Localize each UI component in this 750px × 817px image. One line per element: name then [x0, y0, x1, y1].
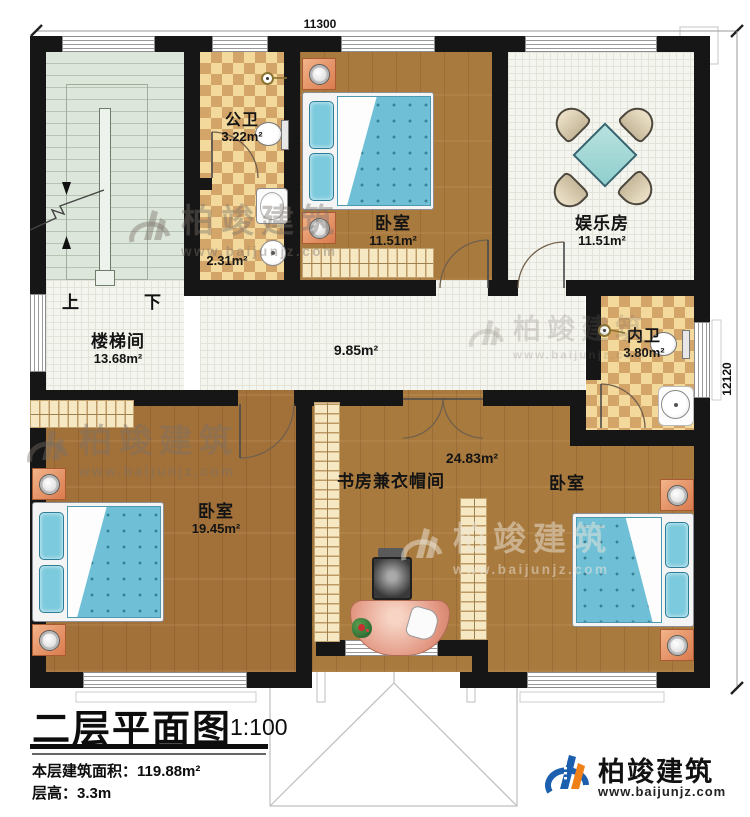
label-bedroom-top: 卧室 11.51m² [338, 214, 448, 248]
drawing-scale: 1:100 [230, 714, 288, 741]
label-ensuite-bath: 内卫 3.80m² [591, 328, 697, 361]
label-stairs-down: 下 [144, 288, 161, 313]
floor-height-text: 层高：3.3m [32, 782, 111, 803]
label-bedroom-right: 卧室 [512, 474, 622, 494]
label-stairwell: 楼梯间 13.68m² [58, 332, 178, 366]
label-stairs-up: 上 [62, 288, 79, 313]
label-entertainment: 娱乐房 11.51m² [547, 214, 657, 248]
title-underline-thin [32, 753, 266, 755]
title-underline-thick [30, 744, 268, 749]
brand-logo-icon [540, 746, 594, 800]
label-wash-area: 2.31m² [172, 254, 282, 269]
dimension-top: 11300 [290, 17, 350, 31]
label-study-name: 书房兼衣帽间 [316, 472, 466, 492]
floor-plan-canvas: 楼梯间 13.68m² 上 下 公卫 3.22m² 2.31m² 卧室 11.5… [0, 0, 750, 817]
label-hallway: 9.85m² [301, 342, 411, 358]
brand-url: www.baijunjz.com [598, 784, 726, 799]
label-public-bath: 公卫 3.22m² [187, 112, 297, 145]
annotation-overlay [0, 0, 750, 817]
label-study-area: 24.83m² [417, 450, 527, 466]
label-bedroom-left: 卧室 19.45m² [161, 502, 271, 536]
floor-area-text: 本层建筑面积：119.88m² [32, 760, 200, 781]
dimension-right: 12120 [720, 354, 734, 404]
